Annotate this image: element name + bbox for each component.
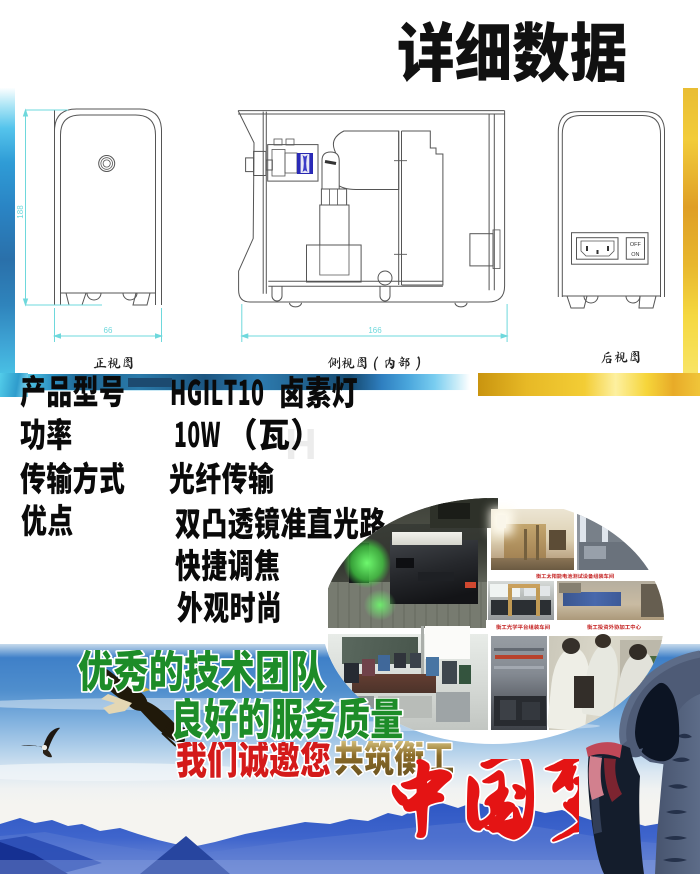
svg-text:188: 188 (16, 205, 25, 219)
svg-text:166: 166 (368, 326, 382, 335)
svg-text:OFF: OFF (630, 242, 642, 248)
svg-text:66: 66 (104, 326, 113, 335)
svg-text:ON: ON (631, 252, 639, 258)
